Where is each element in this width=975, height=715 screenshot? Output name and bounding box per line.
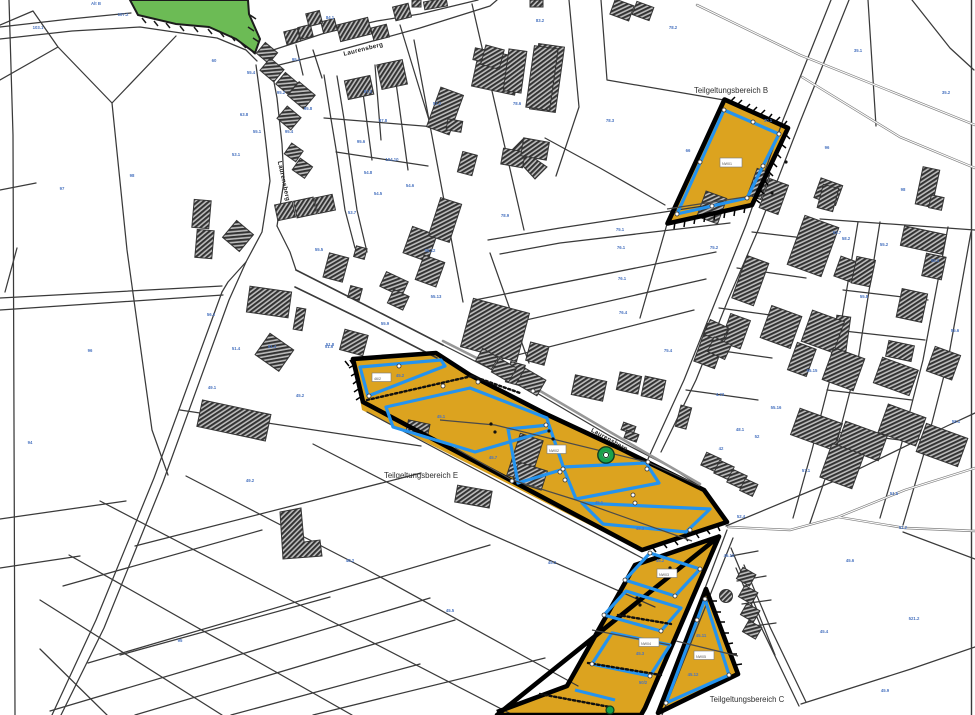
svg-text:83.2: 83.2: [536, 18, 545, 23]
svg-text:45.7: 45.7: [489, 455, 498, 460]
svg-text:51.8: 51.8: [326, 342, 335, 347]
svg-text:107.2: 107.2: [118, 12, 129, 17]
svg-text:58.2: 58.2: [842, 236, 851, 241]
svg-text:4.73: 4.73: [716, 392, 725, 397]
svg-text:57.2: 57.2: [433, 101, 442, 106]
svg-text:98: 98: [901, 187, 906, 192]
svg-text:54.6: 54.6: [406, 183, 415, 188]
svg-text:97: 97: [60, 186, 65, 191]
svg-text:95.2: 95.2: [277, 90, 286, 95]
svg-text:45.10: 45.10: [724, 553, 735, 558]
svg-text:78.3: 78.3: [606, 118, 615, 123]
svg-text:95.1: 95.1: [292, 57, 301, 62]
svg-text:45.9: 45.9: [881, 688, 890, 693]
svg-text:78.9: 78.9: [501, 213, 510, 218]
svg-text:45.2: 45.2: [396, 373, 405, 378]
svg-text:48.1: 48.1: [736, 427, 745, 432]
svg-text:95: 95: [178, 638, 183, 643]
svg-text:103.1: 103.1: [33, 25, 44, 30]
svg-text:84.1: 84.1: [326, 15, 335, 20]
svg-text:78.6: 78.6: [513, 101, 522, 106]
svg-text:60: 60: [212, 58, 217, 63]
svg-text:45.3: 45.3: [636, 526, 645, 531]
svg-text:55.13: 55.13: [431, 294, 442, 299]
svg-text:55.3: 55.3: [931, 258, 940, 263]
svg-text:35.2: 35.2: [942, 90, 951, 95]
svg-text:53.7: 53.7: [348, 210, 357, 215]
svg-text:95.4: 95.4: [285, 129, 294, 134]
svg-text:76.4: 76.4: [619, 310, 628, 315]
svg-text:55.16: 55.16: [771, 405, 782, 410]
svg-text:98: 98: [130, 173, 135, 178]
svg-text:48.2: 48.2: [346, 558, 355, 563]
svg-text:66: 66: [686, 148, 691, 153]
svg-text:46/2: 46/2: [374, 377, 381, 381]
svg-text:Teilgeltungsbereich C: Teilgeltungsbereich C: [710, 695, 785, 704]
svg-text:30.1: 30.1: [764, 118, 773, 123]
svg-text:NW04: NW04: [641, 642, 651, 646]
svg-text:54.5: 54.5: [374, 191, 383, 196]
svg-text:45.1: 45.1: [595, 500, 604, 505]
svg-text:55.4: 55.4: [247, 70, 256, 75]
svg-text:104.10: 104.10: [385, 157, 399, 162]
svg-text:55.1: 55.1: [253, 129, 262, 134]
svg-text:58.1: 58.1: [952, 419, 961, 424]
svg-text:94: 94: [28, 440, 33, 445]
svg-text:49.1: 49.1: [208, 385, 217, 390]
svg-text:45.11: 45.11: [696, 633, 707, 638]
svg-text:55.12: 55.12: [425, 248, 436, 253]
svg-text:96: 96: [88, 348, 93, 353]
svg-text:45.12: 45.12: [688, 672, 699, 677]
svg-text:75.2: 75.2: [710, 245, 719, 250]
svg-text:55.2: 55.2: [880, 242, 889, 247]
svg-text:53.1: 53.1: [232, 152, 241, 157]
svg-text:42: 42: [719, 446, 724, 451]
svg-text:45.5: 45.5: [446, 608, 455, 613]
svg-text:52: 52: [755, 434, 760, 439]
svg-text:55.5: 55.5: [315, 247, 324, 252]
svg-text:91.4: 91.4: [268, 344, 277, 349]
svg-text:75.4: 75.4: [664, 348, 673, 353]
svg-text:76.1: 76.1: [618, 276, 627, 281]
svg-text:45.4: 45.4: [820, 629, 829, 634]
svg-text:51.2: 51.2: [899, 525, 908, 530]
svg-text:51.5: 51.5: [890, 491, 899, 496]
svg-text:56.2: 56.2: [207, 312, 216, 317]
svg-text:NW02: NW02: [549, 449, 559, 453]
svg-text:55.9: 55.9: [381, 321, 390, 326]
svg-text:45.2: 45.2: [296, 393, 305, 398]
svg-text:Alt B: Alt B: [91, 1, 101, 6]
svg-text:95.6: 95.6: [357, 139, 366, 144]
svg-text:NW03: NW03: [659, 573, 669, 577]
svg-text:75.1: 75.1: [616, 227, 625, 232]
svg-text:Teilgeltungsbereich E: Teilgeltungsbereich E: [384, 471, 458, 480]
svg-text:45.2: 45.2: [656, 558, 665, 563]
svg-text:95.8: 95.8: [304, 106, 313, 111]
svg-text:Teilgeltungsbereich B: Teilgeltungsbereich B: [694, 86, 768, 95]
svg-text:51.4: 51.4: [232, 346, 241, 351]
svg-text:54.8: 54.8: [364, 170, 373, 175]
svg-text:NW05: NW05: [696, 655, 706, 659]
svg-text:45.2: 45.2: [548, 560, 557, 565]
svg-text:55.15: 55.15: [807, 368, 818, 373]
svg-text:87.2: 87.2: [364, 89, 373, 94]
svg-text:NW01: NW01: [722, 162, 732, 166]
svg-text:63.8: 63.8: [240, 112, 249, 117]
svg-text:52.4: 52.4: [737, 514, 746, 519]
svg-text:35.1: 35.1: [854, 48, 863, 53]
svg-text:76.1: 76.1: [617, 245, 626, 250]
svg-text:78.2: 78.2: [669, 25, 678, 30]
svg-text:50/2: 50/2: [639, 680, 648, 685]
svg-text:49.2: 49.2: [246, 478, 255, 483]
svg-text:45.3: 45.3: [636, 651, 645, 656]
svg-text:55.8: 55.8: [860, 294, 869, 299]
svg-text:57.1: 57.1: [802, 468, 811, 473]
svg-text:521.2: 521.2: [909, 616, 920, 621]
svg-text:96: 96: [825, 145, 830, 150]
svg-text:45.6: 45.6: [846, 558, 855, 563]
svg-text:45.1: 45.1: [437, 414, 446, 419]
svg-text:87.8: 87.8: [379, 118, 388, 123]
svg-text:55.6: 55.6: [951, 328, 960, 333]
svg-text:53.7: 53.7: [833, 230, 842, 235]
